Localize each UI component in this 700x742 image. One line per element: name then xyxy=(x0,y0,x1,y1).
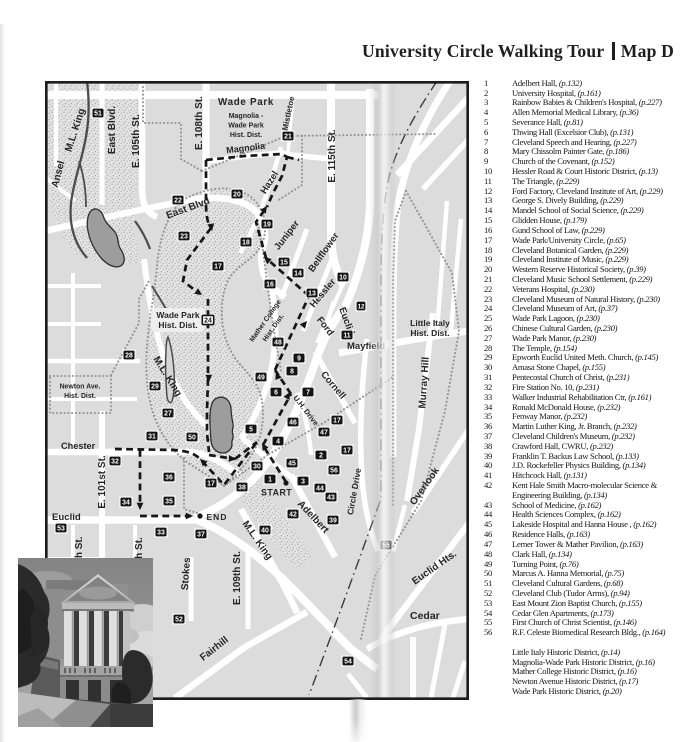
svg-text:Hist. Dist.: Hist. Dist. xyxy=(64,393,96,400)
svg-text:h St.: h St. xyxy=(134,537,145,559)
svg-text:43: 43 xyxy=(327,495,335,502)
svg-text:56: 56 xyxy=(330,468,338,475)
svg-text:6: 6 xyxy=(274,390,278,397)
svg-text:Cedar: Cedar xyxy=(410,610,440,622)
svg-text:17: 17 xyxy=(343,448,351,455)
svg-text:30: 30 xyxy=(253,464,261,471)
svg-text:Wade Park: Wade Park xyxy=(228,123,264,130)
svg-text:29: 29 xyxy=(151,384,159,391)
svg-text:15: 15 xyxy=(280,260,288,267)
svg-text:48: 48 xyxy=(274,340,282,347)
svg-text:22: 22 xyxy=(174,198,182,205)
svg-text:Wade Park: Wade Park xyxy=(156,310,199,320)
svg-text:E. 105th St.: E. 105th St. xyxy=(131,114,142,168)
svg-text:23: 23 xyxy=(180,234,188,241)
svg-text:E. 115th St.: E. 115th St. xyxy=(327,129,338,183)
svg-text:36: 36 xyxy=(165,475,173,482)
svg-text:16: 16 xyxy=(266,282,274,289)
svg-text:Hist. Dist.: Hist. Dist. xyxy=(158,320,197,330)
svg-text:E. 108th St.: E. 108th St. xyxy=(194,96,205,150)
svg-text:12: 12 xyxy=(358,303,365,310)
svg-text:Chester: Chester xyxy=(61,441,96,451)
svg-text:47: 47 xyxy=(320,430,328,437)
svg-text:10: 10 xyxy=(339,275,347,282)
svg-text:39: 39 xyxy=(329,518,337,525)
svg-text:27: 27 xyxy=(164,411,172,418)
svg-text:1: 1 xyxy=(268,477,272,484)
svg-text:17: 17 xyxy=(214,264,222,271)
svg-text:40: 40 xyxy=(261,528,269,535)
svg-text:44: 44 xyxy=(316,486,324,493)
svg-text:18: 18 xyxy=(242,240,250,247)
svg-text:19: 19 xyxy=(263,222,271,229)
svg-text:Stokes: Stokes xyxy=(180,557,193,591)
svg-text:2: 2 xyxy=(319,453,323,460)
svg-text:11: 11 xyxy=(343,333,350,340)
svg-text:28: 28 xyxy=(125,353,133,360)
svg-text:END: END xyxy=(207,512,228,522)
svg-text:3: 3 xyxy=(301,479,305,486)
svg-text:51: 51 xyxy=(94,111,102,118)
svg-text:50: 50 xyxy=(188,435,196,442)
svg-text:53: 53 xyxy=(57,526,65,533)
svg-text:8: 8 xyxy=(290,369,294,376)
svg-text:Little Italy: Little Italy xyxy=(410,318,450,328)
svg-text:17: 17 xyxy=(207,481,215,488)
svg-text:24: 24 xyxy=(204,318,212,325)
svg-text:Hist. Dist.: Hist. Dist. xyxy=(230,132,262,139)
svg-text:9: 9 xyxy=(297,356,301,363)
svg-text:17: 17 xyxy=(333,418,341,425)
svg-text:35: 35 xyxy=(165,499,173,506)
svg-text:31: 31 xyxy=(148,434,156,441)
svg-text:33: 33 xyxy=(157,530,165,537)
svg-text:46: 46 xyxy=(289,420,297,427)
svg-text:Wade Park: Wade Park xyxy=(218,97,274,108)
svg-text:49: 49 xyxy=(257,375,265,382)
svg-text:Newton Ave.: Newton Ave. xyxy=(60,384,101,391)
svg-text:32: 32 xyxy=(111,459,119,466)
svg-text:START: START xyxy=(261,488,292,498)
svg-text:54: 54 xyxy=(344,659,352,666)
svg-text:5: 5 xyxy=(249,427,253,434)
svg-text:Magnolia -: Magnolia - xyxy=(229,113,264,120)
svg-text:4: 4 xyxy=(276,439,280,446)
svg-text:52: 52 xyxy=(175,617,183,624)
svg-text:42: 42 xyxy=(289,512,297,519)
svg-text:13: 13 xyxy=(308,291,316,298)
svg-text:38: 38 xyxy=(238,485,246,492)
svg-text:Euclid: Euclid xyxy=(52,512,81,523)
svg-text:21: 21 xyxy=(284,134,292,141)
svg-text:14: 14 xyxy=(294,271,302,278)
svg-text:37: 37 xyxy=(197,532,205,539)
svg-text:East Blvd.: East Blvd. xyxy=(107,106,118,155)
svg-text:7: 7 xyxy=(306,390,310,397)
svg-text:34: 34 xyxy=(122,500,130,507)
svg-text:Hist. Dist.: Hist. Dist. xyxy=(410,328,449,338)
svg-text:E. 101st St.: E. 101st St. xyxy=(97,455,108,509)
svg-text:20: 20 xyxy=(233,192,241,199)
svg-text:E. 109th St.: E. 109th St. xyxy=(232,551,243,605)
svg-text:45: 45 xyxy=(288,461,296,468)
